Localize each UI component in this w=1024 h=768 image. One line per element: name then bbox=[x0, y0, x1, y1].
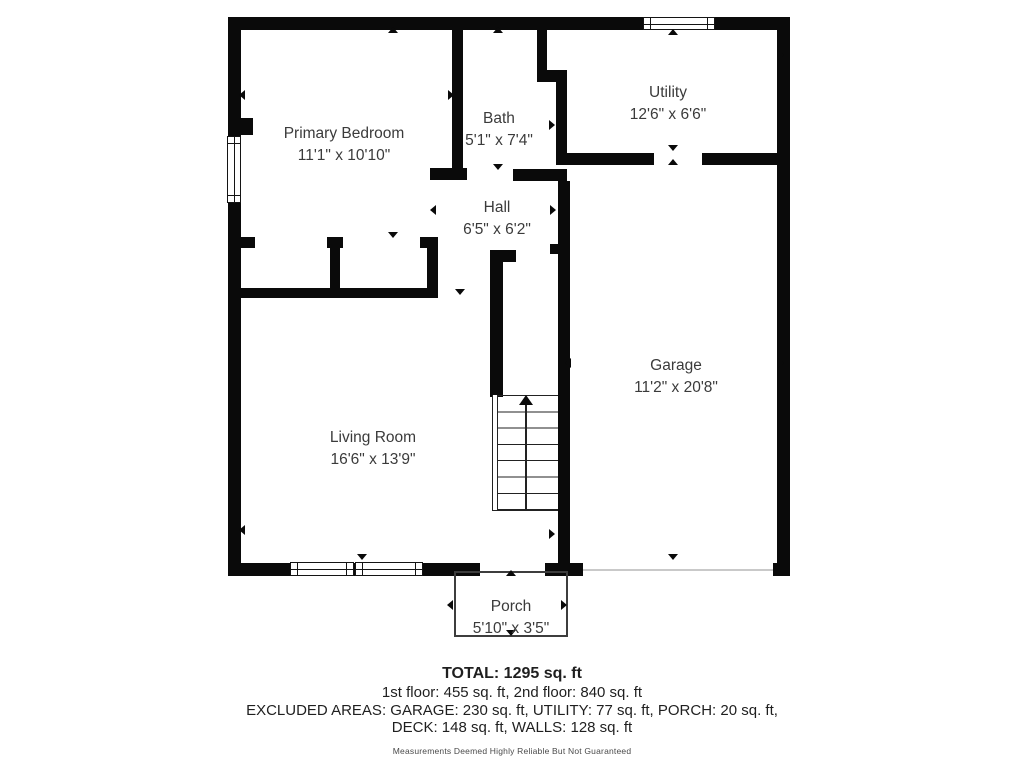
room-name: Bath bbox=[465, 108, 533, 130]
room-name: Living Room bbox=[330, 427, 416, 449]
wall-utility-bottom-left bbox=[556, 153, 654, 165]
wall-closet-bottom bbox=[241, 288, 438, 298]
dimension-arrow bbox=[668, 554, 678, 560]
dimension-arrow bbox=[539, 50, 545, 60]
dimension-arrow bbox=[550, 205, 556, 215]
door-arrow bbox=[668, 145, 678, 151]
wall-garage-left bbox=[558, 181, 570, 563]
dimension-arrow bbox=[361, 291, 371, 297]
room-dimensions: 6'5" x 6'2" bbox=[463, 219, 531, 241]
window-bottom-1 bbox=[290, 562, 354, 576]
wall-stairwell-left bbox=[490, 250, 503, 397]
dimension-arrow bbox=[778, 358, 784, 368]
room-label-living-room: Living Room 16'6" x 13'9" bbox=[330, 427, 416, 471]
wall-stairwell-stub bbox=[490, 250, 516, 262]
room-dimensions: 5'1" x 7'4" bbox=[465, 130, 533, 152]
wall-exterior-bottom-right bbox=[773, 563, 790, 576]
excluded-areas-1: EXCLUDED AREAS: GARAGE: 230 sq. ft, UTIL… bbox=[0, 702, 1024, 720]
wall-bath-right-upper bbox=[537, 17, 547, 77]
room-dimensions: 12'6" x 6'6" bbox=[630, 104, 706, 126]
stair-direction-line bbox=[525, 404, 527, 510]
wall-bath-right-lower bbox=[556, 70, 567, 160]
dimension-arrow bbox=[388, 232, 398, 238]
room-label-bath: Bath 5'1" x 7'4" bbox=[465, 108, 533, 152]
room-dimensions: 11'2" x 20'8" bbox=[634, 377, 718, 399]
excluded-areas-2: DECK: 148 sq. ft, WALLS: 128 sq. ft bbox=[0, 719, 1024, 737]
floor-plan: Primary Bedroom 11'1" x 10'10" Bath 5'1"… bbox=[0, 0, 1024, 768]
dimension-arrow bbox=[457, 120, 463, 130]
wall-left-stub bbox=[241, 118, 253, 135]
room-name: Primary Bedroom bbox=[284, 123, 405, 145]
garage-door-opening bbox=[583, 569, 773, 571]
dimension-arrow bbox=[668, 29, 678, 35]
wall-utility-bottom-right bbox=[702, 153, 790, 165]
dimension-arrow bbox=[493, 164, 503, 170]
dimension-arrow bbox=[565, 358, 571, 368]
dimension-arrow bbox=[549, 120, 555, 130]
dimension-arrow bbox=[448, 90, 454, 100]
room-label-hall: Hall 6'5" x 6'2" bbox=[463, 197, 531, 241]
room-name: Porch bbox=[473, 596, 549, 618]
wall-hall-stub-right bbox=[550, 244, 558, 254]
disclaimer: Measurements Deemed Highly Reliable But … bbox=[0, 746, 1024, 756]
room-dimensions: 5'10" x 3'5" bbox=[473, 618, 549, 640]
room-label-garage: Garage 11'2" x 20'8" bbox=[634, 355, 718, 399]
dimension-arrow bbox=[778, 50, 784, 60]
wall-exterior-left bbox=[228, 17, 241, 576]
dimension-arrow bbox=[493, 27, 503, 33]
window-bottom-2 bbox=[355, 562, 423, 576]
window-top-wall bbox=[643, 17, 715, 30]
staircase bbox=[492, 395, 558, 511]
room-label-primary-bedroom: Primary Bedroom 11'1" x 10'10" bbox=[284, 123, 405, 167]
dimension-arrow bbox=[388, 27, 398, 33]
floor-areas: 1st floor: 455 sq. ft, 2nd floor: 840 sq… bbox=[0, 684, 1024, 702]
dimension-arrow bbox=[549, 529, 555, 539]
dimension-arrow bbox=[430, 205, 436, 215]
stair-up-arrow-icon bbox=[519, 395, 533, 405]
dimension-arrow bbox=[357, 554, 367, 560]
wall-exterior-right bbox=[777, 17, 790, 576]
room-name: Garage bbox=[634, 355, 718, 377]
door-arrow bbox=[668, 159, 678, 165]
room-label-porch: Porch 5'10" x 3'5" bbox=[473, 596, 549, 640]
dimension-arrow bbox=[506, 570, 516, 576]
dimension-arrow bbox=[239, 525, 245, 535]
wall-exterior-bottom-left bbox=[228, 563, 480, 576]
area-summary: TOTAL: 1295 sq. ft 1st floor: 455 sq. ft… bbox=[0, 663, 1024, 756]
dimension-arrow bbox=[239, 90, 245, 100]
room-name: Hall bbox=[463, 197, 531, 219]
stair-rail bbox=[492, 395, 498, 510]
room-dimensions: 16'6" x 13'9" bbox=[330, 449, 416, 471]
wall-hall-top-right bbox=[513, 169, 567, 181]
room-dimensions: 11'1" x 10'10" bbox=[284, 145, 405, 167]
room-name: Utility bbox=[630, 82, 706, 104]
wall-bedroom-bottom-a bbox=[241, 237, 255, 248]
total-area: TOTAL: 1295 sq. ft bbox=[0, 663, 1024, 684]
room-label-utility: Utility 12'6" x 6'6" bbox=[630, 82, 706, 126]
dimension-arrow bbox=[455, 289, 465, 295]
dimension-arrow bbox=[561, 600, 567, 610]
wall-hall-top-left bbox=[430, 168, 467, 180]
window-left-wall bbox=[227, 136, 241, 203]
dimension-arrow bbox=[447, 600, 453, 610]
